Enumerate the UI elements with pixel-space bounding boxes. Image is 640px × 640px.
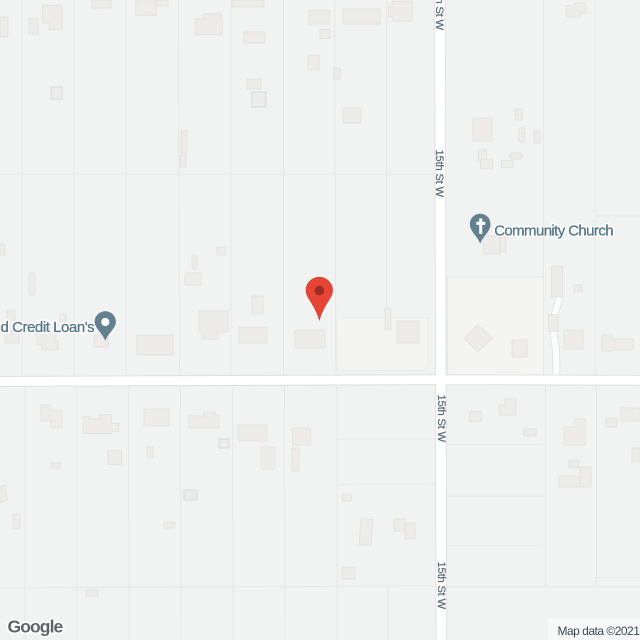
svg-text:Google: Google bbox=[8, 617, 64, 637]
svg-text:15th St W: 15th St W bbox=[435, 562, 447, 610]
svg-text:Map data ©2021: Map data ©2021 bbox=[558, 624, 640, 638]
svg-text:15th St W: 15th St W bbox=[433, 0, 445, 30]
svg-text:d Credit Loan's: d Credit Loan's bbox=[1, 319, 95, 336]
svg-text:Community Church: Community Church bbox=[494, 223, 613, 240]
svg-text:15th St W: 15th St W bbox=[433, 150, 445, 198]
svg-text:15th St W: 15th St W bbox=[435, 395, 447, 443]
